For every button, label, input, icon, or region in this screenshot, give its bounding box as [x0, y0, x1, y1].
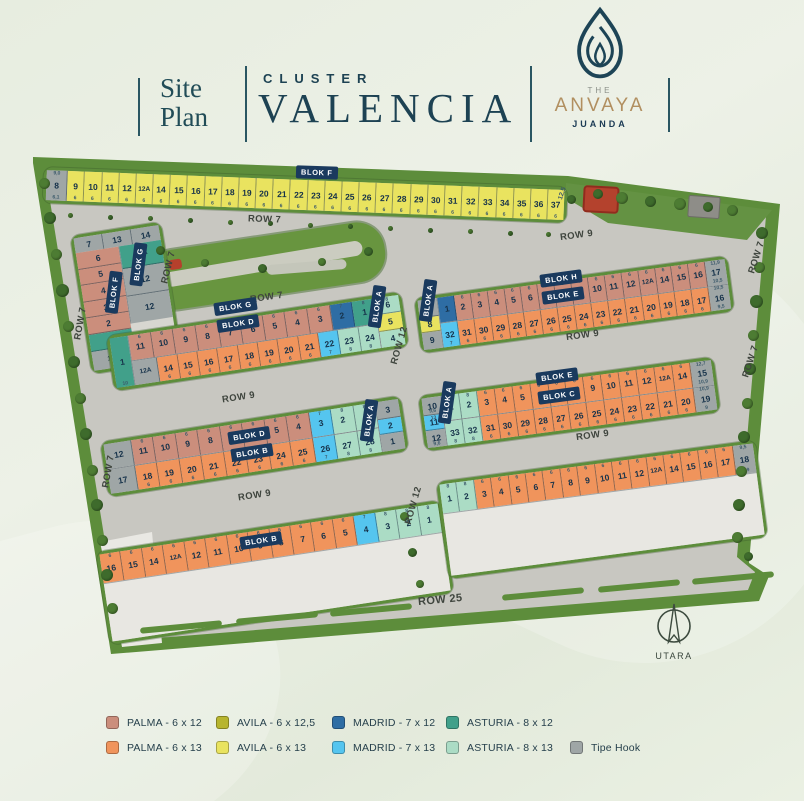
legend-chip-madrid-7x12 [332, 716, 345, 729]
lot-27: 276 [376, 183, 394, 214]
tree-icon [744, 552, 753, 561]
tree-icon [75, 393, 86, 404]
lot-32: 326 [462, 186, 480, 217]
title-site: Site [160, 74, 208, 103]
lot-31: 316 [444, 185, 462, 216]
brand-location: JUANDA [540, 119, 660, 129]
lot-33: 336 [479, 187, 497, 218]
lot-19: 1910,99 [693, 385, 717, 412]
legend-chip-madrid-7x13 [332, 741, 345, 754]
tree-icon [108, 215, 113, 220]
legend-chip-avila-6x125 [216, 716, 229, 729]
tree-icon [87, 465, 98, 476]
tree-icon [742, 398, 753, 409]
lot-35: 356 [513, 188, 531, 219]
anvaya-logo-icon [571, 6, 629, 84]
lot-14: 146 [153, 174, 171, 205]
legend-item: PALMA - 6 x 13 [106, 741, 202, 754]
title-plan: Plan [160, 103, 208, 132]
legend-label: Tipe Hook [591, 742, 640, 754]
legend-chip-asturia-8x13 [446, 741, 459, 754]
lot-1: 1 [380, 431, 405, 451]
brand-logo-block: THE ANVAYA JUANDA [540, 0, 660, 129]
lot-23: 236 [307, 180, 325, 211]
tree-icon [750, 295, 763, 308]
tree-icon [39, 178, 50, 189]
tree-icon [388, 226, 393, 231]
page-title: Site Plan [160, 74, 208, 132]
tree-icon [318, 258, 326, 266]
brand-name: ANVAYA [540, 95, 660, 117]
tree-icon [416, 580, 424, 588]
tree-icon [101, 569, 113, 581]
legend-label: PALMA - 6 x 12 [127, 717, 202, 729]
header-divider [245, 66, 247, 142]
lot-12: 12 [127, 290, 173, 323]
tree-icon [738, 431, 750, 443]
tree-icon [51, 249, 62, 260]
legend-label: MADRID - 7 x 12 [353, 717, 435, 729]
north-compass: UTARA [644, 602, 704, 661]
lot-15: 156 [170, 175, 188, 206]
row7-label: ROW 7 [248, 213, 282, 225]
tree-icon [68, 356, 80, 368]
header-divider [138, 78, 140, 136]
tree-icon [736, 466, 747, 477]
tree-icon [546, 232, 551, 237]
tree-icon [148, 216, 153, 221]
tree-icon [593, 189, 603, 199]
legend-label: PALMA - 6 x 13 [127, 742, 202, 754]
tree-icon [44, 212, 56, 224]
legend-chip-palma-6x13 [106, 741, 119, 754]
legend-label: AVILA - 6 x 13 [237, 742, 306, 754]
lot-16: 166 [187, 176, 205, 207]
lot-12A: 12A6 [136, 174, 154, 205]
lot-19: 196 [239, 178, 257, 209]
lot-9: 9 [422, 331, 443, 351]
tree-icon [645, 196, 656, 207]
lot-1: 18 [417, 503, 442, 535]
tree-icon [348, 224, 353, 229]
lot-9: 96 [67, 171, 85, 202]
legend-item: ASTURIA - 8 x 13 [446, 741, 553, 754]
blok-f-badge: BLOK F [296, 165, 338, 179]
lot-21: 216 [273, 179, 291, 210]
lot-11: 116 [101, 172, 119, 203]
cluster-name: VALENCIA [258, 84, 518, 132]
tree-icon [97, 535, 108, 546]
legend-label: MADRID - 7 x 13 [353, 742, 435, 754]
tree-icon [80, 428, 92, 440]
lot-22: 226 [290, 179, 308, 210]
lot-10: 106 [84, 172, 102, 203]
tree-icon [56, 284, 69, 297]
tree-icon [616, 192, 628, 204]
tree-icon [567, 195, 576, 204]
tree-icon [228, 220, 233, 225]
legend-item: MADRID - 7 x 13 [332, 741, 435, 754]
lot-12A: 12A [132, 357, 161, 385]
tree-icon [68, 213, 73, 218]
lot-34: 346 [496, 187, 514, 218]
legend-label: ASTURIA - 8 x 13 [467, 742, 553, 754]
lot-17: 1711,910,5 [705, 259, 728, 286]
lot-17: 176 [204, 176, 222, 207]
lot-15: 1512,710,9 [690, 360, 714, 387]
lot-12: 126 [118, 173, 136, 204]
tree-icon [201, 259, 209, 267]
compass-icon [646, 602, 702, 650]
legend-item: PALMA - 6 x 12 [106, 716, 202, 729]
legend-item: AVILA - 6 x 12,5 [216, 716, 315, 729]
tree-icon [732, 532, 743, 543]
legend-chip-asturia-8x12 [446, 716, 459, 729]
lot-26: 266 [359, 182, 377, 213]
tree-icon [674, 198, 686, 210]
tree-icon [63, 321, 74, 332]
header-divider [530, 66, 532, 142]
tree-icon [107, 603, 118, 614]
tree-icon [364, 247, 373, 256]
tree-icon [308, 223, 313, 228]
tree-icon [468, 229, 473, 234]
compass-label: UTARA [644, 651, 704, 661]
legend-item: ASTURIA - 8 x 12 [446, 716, 553, 729]
legend-chip-palma-6x12 [106, 716, 119, 729]
tree-icon [408, 548, 417, 557]
tree-icon [756, 227, 768, 239]
legend-item: MADRID - 7 x 12 [332, 716, 435, 729]
tree-icon [156, 246, 165, 255]
lot-28: 286 [393, 183, 411, 214]
tree-icon [428, 228, 433, 233]
lot-18: 186 [221, 177, 239, 208]
header-divider [668, 78, 670, 132]
tree-icon [703, 202, 713, 212]
legend-label: ASTURIA - 8 x 12 [467, 717, 553, 729]
legend-item: AVILA - 6 x 13 [216, 741, 306, 754]
tree-icon [188, 218, 193, 223]
lot-16: 1610,59,5 [708, 284, 731, 311]
site-plan-canvas: Site Plan CLUSTER VALENCIA THE ANVAYA JU… [0, 0, 804, 801]
legend-item: Tipe Hook [570, 741, 640, 754]
lot-25: 256 [341, 181, 359, 212]
lot-24: 246 [324, 181, 342, 212]
lot-29: 296 [410, 184, 428, 215]
lot-36: 366 [530, 189, 548, 220]
lot-12: 129,6 [426, 429, 447, 449]
brand-the: THE [540, 86, 660, 95]
lot-30: 306 [427, 185, 445, 216]
legend-chip-avila-6x13 [216, 741, 229, 754]
tree-icon [258, 264, 267, 273]
tree-icon [91, 499, 103, 511]
tree-icon [748, 330, 759, 341]
tree-icon [727, 205, 738, 216]
tree-icon [733, 499, 745, 511]
lot-20: 206 [256, 178, 274, 209]
tree-icon [508, 231, 513, 236]
legend-chip-tipe-hook [570, 741, 583, 754]
legend-label: AVILA - 6 x 12,5 [237, 717, 315, 729]
